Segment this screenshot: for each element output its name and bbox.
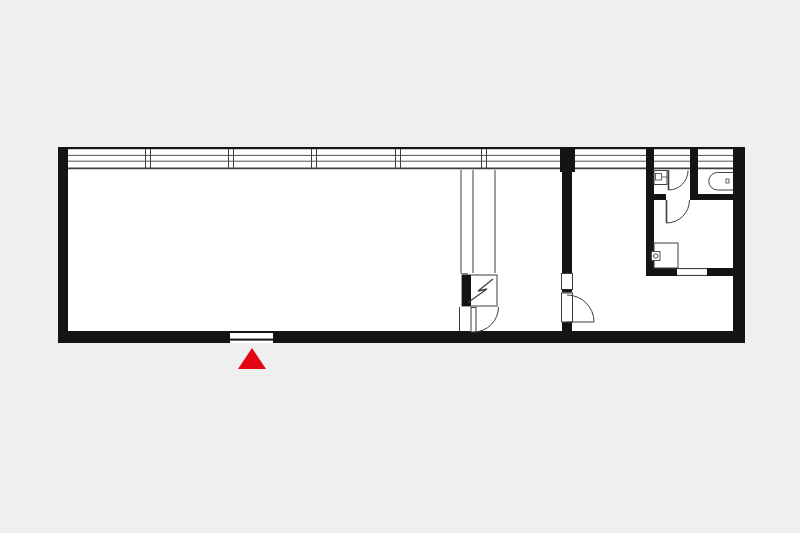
exterior-wall-left	[58, 147, 68, 343]
floor-plan-canvas	[0, 0, 800, 533]
washbasin-faucet	[656, 174, 662, 181]
interior-door-frame	[562, 274, 573, 290]
utility-door-leaf	[471, 308, 476, 333]
threshold-gap	[677, 268, 707, 276]
exterior-wall-right	[733, 147, 745, 343]
electrical-cabinet-icon	[462, 275, 497, 306]
interior-door-stop	[562, 290, 572, 293]
exterior-wall-top-line	[58, 147, 745, 149]
threshold-line-top	[677, 268, 707, 269]
kitchen-wall-south-left	[646, 268, 677, 276]
entrance-threshold-outer	[230, 331, 273, 333]
entrance-threshold-inner	[230, 339, 273, 341]
interior-wall-a-upper	[562, 147, 572, 273]
interior-door-leaf	[562, 293, 573, 322]
interior-wall-a-lower	[562, 322, 572, 332]
bathroom-wall-south-left	[646, 194, 666, 200]
floor-plan	[0, 0, 800, 533]
toilet-icon	[709, 173, 733, 191]
threshold-opening	[677, 268, 707, 276]
stove-icon	[650, 252, 661, 261]
stove-burner	[654, 254, 658, 258]
kitchenette	[650, 243, 679, 268]
exterior-wall-bottom	[58, 331, 745, 343]
wc-partition-wall	[690, 147, 698, 200]
entrance-opening	[230, 331, 273, 343]
threshold-line-bottom	[677, 275, 707, 276]
toilet-flush-button	[726, 179, 729, 183]
wc-wall-south	[690, 194, 733, 200]
washbasin-icon	[654, 171, 667, 185]
plan-floor	[58, 147, 745, 343]
kitchen-wall-south-right	[707, 268, 733, 276]
